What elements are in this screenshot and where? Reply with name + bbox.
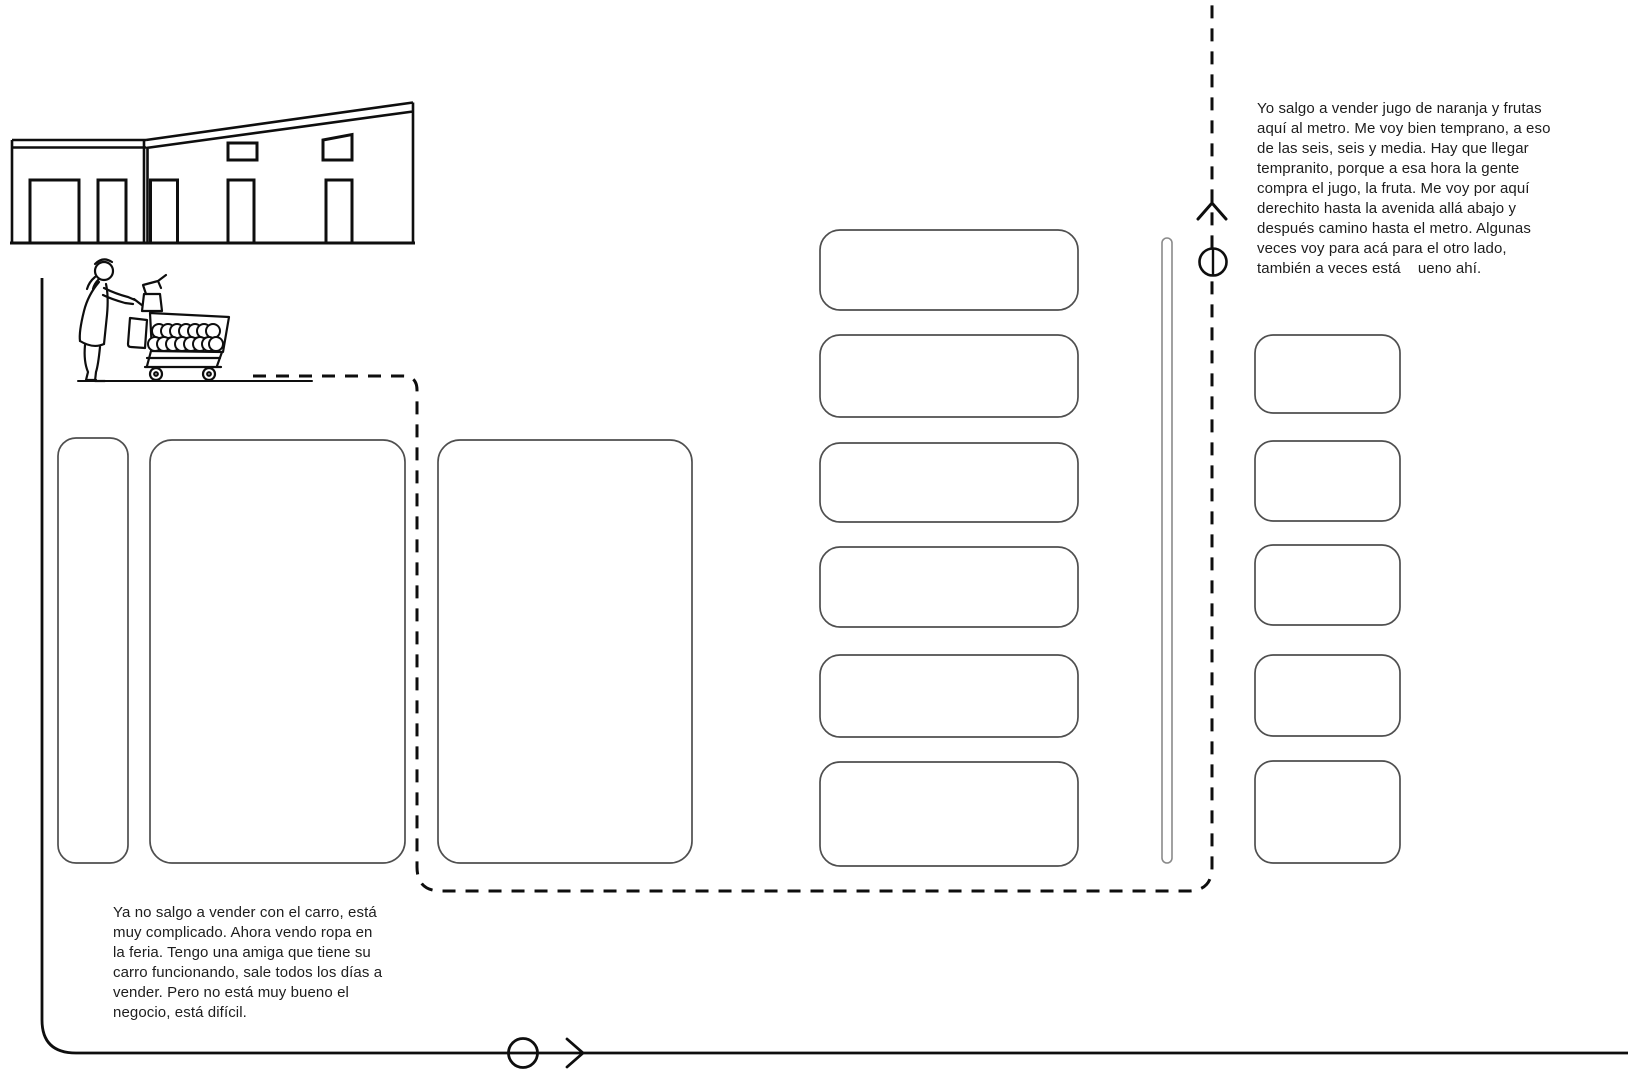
vendor-woman: [80, 259, 135, 381]
map-block-right-5: [1255, 761, 1400, 863]
market-building-icon: [10, 103, 415, 244]
juicer: [142, 294, 162, 311]
map-block-right-4: [1255, 655, 1400, 736]
map-block-mid-3: [820, 443, 1078, 522]
building-door: [228, 180, 254, 243]
map-block-right-1: [1255, 335, 1400, 413]
building-door: [326, 180, 352, 243]
building-door: [30, 180, 79, 243]
building-door: [151, 180, 178, 243]
cart-bag: [128, 318, 147, 348]
map-block-mid-5: [820, 655, 1078, 737]
building-window: [228, 143, 257, 160]
map-block-left-narrow: [58, 438, 128, 863]
map-block-mid-2: [820, 335, 1078, 417]
map-block-right-3: [1255, 545, 1400, 625]
oranges: [148, 324, 223, 351]
metro-vendor-quote: Yo salgo a vender jugo de naranja y frut…: [1257, 99, 1597, 279]
map-block-mid-6: [820, 762, 1078, 866]
juicer-lever: [143, 275, 166, 294]
map-block-left-large-2: [438, 440, 692, 863]
feria-vendor-quote: Ya no salgo a vender con el carro, está …: [113, 903, 413, 1023]
street-median-bar: [1162, 238, 1172, 863]
map-block-left-large-1: [150, 440, 405, 863]
map-block-mid-1: [820, 230, 1078, 310]
building-door: [98, 180, 126, 243]
map-block-right-2: [1255, 441, 1400, 521]
building-right-section: [146, 103, 413, 244]
city-blocks: [58, 230, 1400, 866]
building-window: [323, 135, 352, 161]
mental-map-diagram: Yo salgo a vender jugo de naranja y frut…: [0, 0, 1628, 1080]
vendor-with-cart-icon: [78, 259, 312, 381]
map-block-mid-4: [820, 547, 1078, 627]
